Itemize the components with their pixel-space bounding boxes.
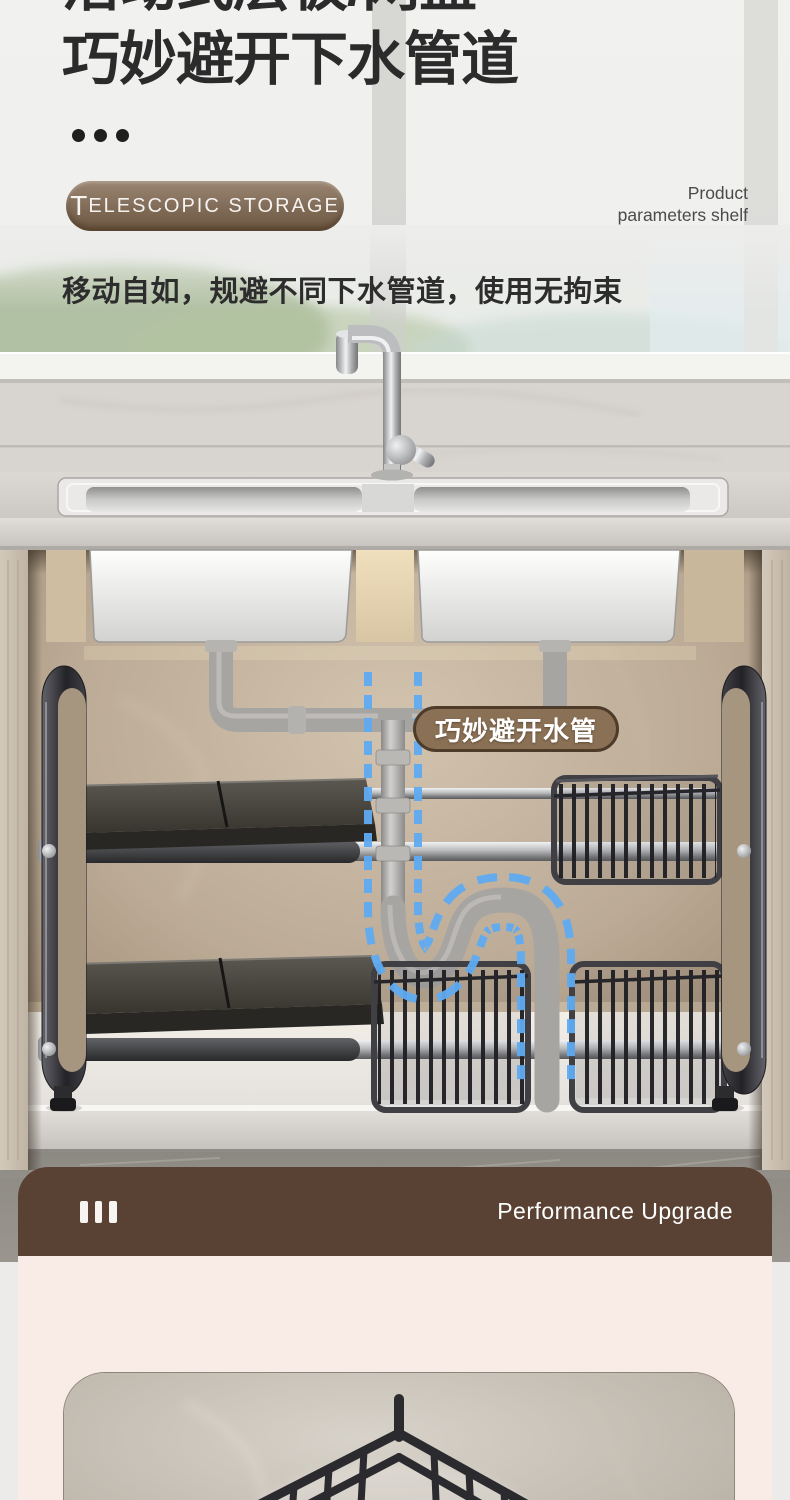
performance-upgrade-card: Performance Upgrade (18, 1167, 772, 1500)
callout-pill: 巧妙避开水管 (413, 706, 619, 752)
note-line2: parameters shelf (618, 205, 748, 227)
upper-wire-basket (554, 776, 720, 882)
double-sink (58, 478, 728, 516)
cabinet-side-left (0, 550, 28, 1170)
sink-bowl-right (414, 487, 690, 512)
window-frame-band (744, 0, 778, 225)
rack-detail-photo (63, 1372, 735, 1500)
card-body (18, 1256, 772, 1500)
card-title: Performance Upgrade (497, 1198, 733, 1225)
product-parameters-note: Product parameters shelf (618, 183, 748, 226)
badge-initial: T (70, 190, 88, 222)
sink-bowl-left (86, 487, 362, 512)
triple-bars-icon (80, 1201, 117, 1223)
telescopic-storage-badge: TELESCOPIC STORAGE (66, 181, 344, 231)
wire-basket-closeup (64, 1373, 734, 1500)
counter-front (0, 518, 790, 548)
card-header: Performance Upgrade (18, 1167, 772, 1256)
ellipsis-dots-icon (72, 129, 129, 142)
note-line1: Product (618, 183, 748, 205)
lower-wire-basket-right (572, 964, 724, 1110)
product-detail-page: 活动式层板/网篮 巧妙避开下水管道 TELESCOPIC STORAGE Pro… (0, 0, 790, 1500)
badge-label: ELESCOPIC STORAGE (88, 195, 339, 218)
product-photo (0, 225, 790, 1178)
page-title-line2: 巧妙避开下水管道 (62, 30, 518, 91)
feature-subtitle: 移动自如，规避不同下水管道，使用无拘束 (62, 268, 623, 310)
page-title-line1: 活动式层板/网篮 (62, 0, 476, 17)
